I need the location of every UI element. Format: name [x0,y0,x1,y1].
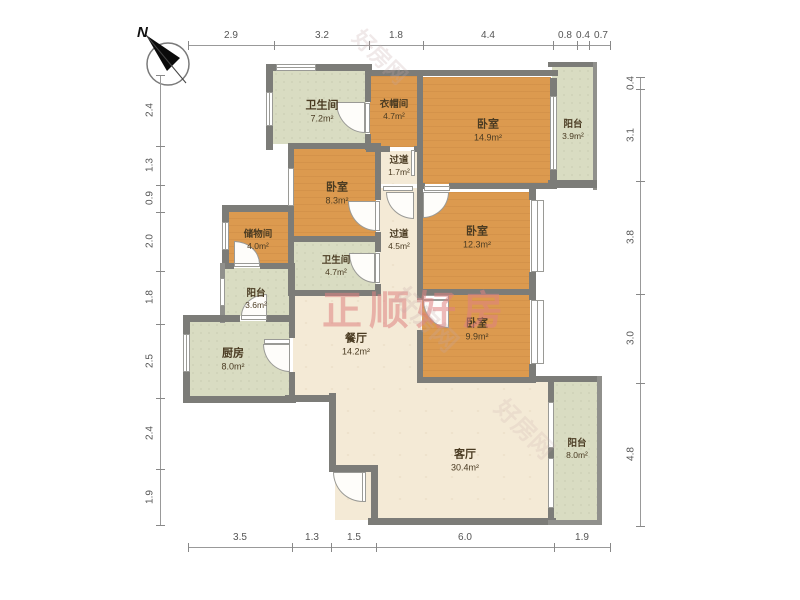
room-name: 卧室 [463,226,491,240]
room-area: 4.5m² [388,241,410,252]
wall [529,376,597,382]
wall [329,465,378,472]
wall [222,205,294,212]
room-area: 12.3m² [463,239,491,250]
wall [266,64,273,92]
room-area: 3.6m² [245,300,267,311]
wall [550,78,557,96]
wall [266,126,273,150]
door-leaf [365,103,370,133]
room-area: 4.0m² [244,241,273,252]
room-name: 卫生间 [322,255,351,267]
room-area: 14.2m² [342,346,370,357]
dimension-value: 0.4 [576,30,590,41]
wall [183,315,240,322]
window [531,200,544,272]
wall [417,145,423,187]
dimension-value: 4.8 [626,447,637,461]
floor-plan-page: N [0,0,800,600]
wall [183,315,190,334]
room-label-bedroom-2: 卧室 8.3m² [325,182,348,207]
dimension-value: 0.9 [145,191,156,205]
room-label-cloakroom: 衣帽间 4.7m² [380,99,409,122]
room-area: 30.4m² [451,462,479,473]
room-area: 4.7m² [380,111,409,122]
wall [288,143,294,168]
dimension-line-top: 2.9 3.2 1.8 4.4 0.8 0.4 0.7 [188,45,610,46]
dimension-value: 2.9 [224,30,238,41]
dimension-value: 1.5 [347,532,361,543]
dimension-value: 3.8 [626,230,637,244]
room-name: 过道 [388,155,410,167]
room-name: 客厅 [451,449,479,463]
wall [529,288,536,300]
wall [417,377,536,383]
wall [375,232,381,252]
dimension-value: 2.5 [145,354,156,368]
dimension-value: 1.9 [575,532,589,543]
dimension-value: 2.0 [145,234,156,248]
window [550,96,557,170]
room-area: 1.7m² [388,167,410,178]
wall [288,236,381,242]
room-label-bathroom-top: 卫生间 7.2m² [306,100,339,125]
dimension-value: 3.0 [626,331,637,345]
window [531,300,544,364]
dimension-value: 1.3 [145,158,156,172]
wall [375,143,381,200]
room-label-bedroom-3: 卧室 12.3m² [463,226,491,251]
dimension-line-left: 2.4 1.3 0.9 2.0 1.8 2.5 2.4 1.9 [160,75,161,525]
room-name: 储物间 [244,229,273,241]
window [266,92,273,126]
window [276,64,316,71]
wall [449,183,557,189]
dimension-value: 2.4 [145,426,156,440]
dimension-value: 6.0 [458,532,472,543]
room-name: 卫生间 [306,100,339,114]
room-area: 4.7m² [322,267,351,278]
wall [222,205,229,222]
wall [417,72,423,152]
room-label-balcony-right: 阳台 8.0m² [566,438,588,461]
window [222,222,229,250]
room-name: 过道 [388,229,410,241]
dimension-value: 1.8 [389,30,403,41]
dimension-line-bottom: 3.5 1.3 1.5 6.0 1.9 [188,547,610,548]
balcony-railing [597,376,602,525]
compass-north-icon: N [134,20,198,94]
dimension-value: 4.4 [481,30,495,41]
room-label-storage: 储物间 4.0m² [244,229,273,252]
wall [548,380,554,402]
room-name: 卧室 [474,119,502,133]
wall [365,70,371,102]
dimension-line-right: 0.4 3.1 3.8 3.0 4.8 [640,77,641,526]
door-leaf [424,186,450,191]
room-name: 阳台 [245,288,267,300]
dimension-value: 1.9 [145,490,156,504]
room-area: 14.9m² [474,132,502,143]
wall [529,185,536,200]
dimension-value: 0.8 [558,30,572,41]
dimension-value: 0.4 [626,76,637,90]
room-label-dining: 餐厅 14.2m² [342,333,370,358]
dimension-value: 3.5 [233,532,247,543]
dimension-value: 3.1 [626,128,637,142]
dimension-value: 0.7 [594,30,608,41]
room-name: 阳台 [566,438,588,450]
dimension-value: 3.2 [315,30,329,41]
room-label-bedroom-1: 卧室 14.9m² [474,119,502,144]
room-name: 阳台 [562,119,584,131]
dimension-value: 2.4 [145,103,156,117]
room-area: 7.2m² [306,113,339,124]
wall [368,518,556,525]
room-label-bathroom-2: 卫生间 4.7m² [322,255,351,278]
room-area: 8.0m² [221,361,244,372]
wall [329,393,336,467]
room-label-living: 客厅 30.4m² [451,449,479,474]
room-area: 8.0m² [566,450,588,461]
room-label-kitchen: 厨房 8.0m² [221,348,244,373]
wall [183,396,296,403]
room-area: 8.3m² [325,195,348,206]
room-label-balcony-top: 阳台 3.9m² [562,119,584,142]
window [183,334,190,372]
door-leaf [383,186,413,191]
sliding-door-window [548,458,554,508]
door-leaf [411,150,415,176]
room-name: 卧室 [325,182,348,196]
wall [548,62,597,67]
wall [289,318,295,338]
dimension-value: 1.3 [305,532,319,543]
balcony-railing [593,62,597,190]
wall [371,472,378,522]
window [220,278,225,306]
room-area: 3.9m² [562,131,584,142]
room-name: 厨房 [221,348,244,362]
balcony-railing [548,520,601,525]
room-name: 衣帽间 [380,99,409,111]
room-label-balcony-left: 阳台 3.6m² [245,288,267,311]
wall [289,263,295,318]
room-label-corridor: 过道 4.5m² [388,229,410,252]
compass-label: N [137,24,149,41]
room-label-corridor-small: 过道 1.7m² [388,155,410,178]
dimension-value: 1.8 [145,290,156,304]
window [288,168,294,206]
